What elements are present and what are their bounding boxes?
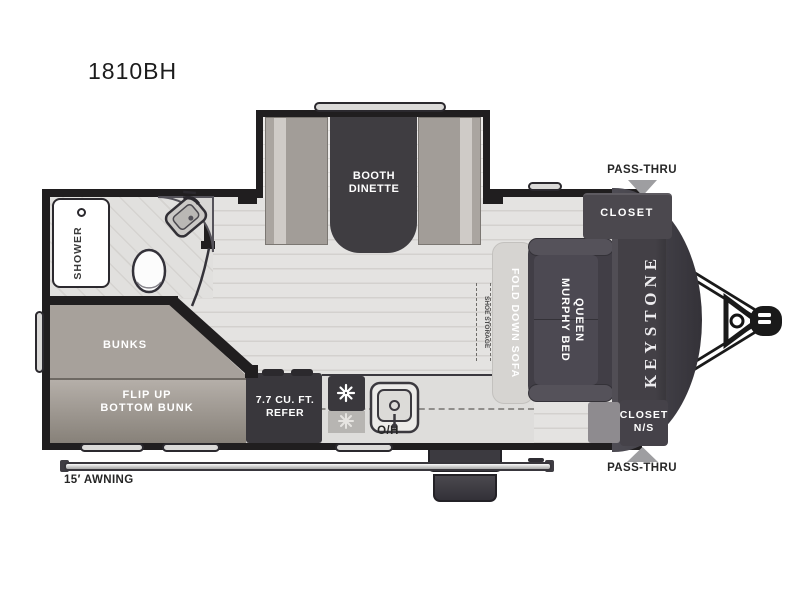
baggage-door	[80, 443, 144, 452]
bathroom-door-swing	[192, 248, 209, 306]
murphy-bed-label: QUEEN MURPHY BED	[554, 238, 586, 402]
shower-label: SHOWER	[72, 203, 88, 303]
window-rear	[35, 311, 44, 373]
burner-icon	[338, 385, 354, 401]
model-number: 1810BH	[88, 58, 177, 85]
bunks-label: BUNKS	[85, 339, 165, 352]
booth-dinette-label: BOOTH DINETTE	[330, 170, 418, 196]
pass-thru-label-bottom: PASS-THRU	[592, 462, 692, 474]
diagonal-wall	[172, 300, 252, 372]
overhead-label: O/H	[374, 425, 402, 437]
fixtures-layer	[0, 0, 800, 600]
window-top	[528, 182, 562, 191]
brand-logo: KEYSTONE	[641, 191, 663, 451]
nightstand	[588, 402, 620, 443]
flip-bunk-label: FLIP UP BOTTOM BUNK	[67, 389, 227, 415]
toilet-icon	[133, 250, 165, 292]
floorplan-1810bh: 1810BH BOOTH DINETTE SHOWER BUNKS FLIP U…	[0, 0, 800, 600]
pass-thru-label-top: PASS-THRU	[592, 164, 692, 176]
baggage-door	[162, 443, 220, 452]
window-bottom	[335, 443, 393, 452]
awning-bar	[64, 462, 552, 471]
bathroom-bottom-wall	[46, 296, 178, 305]
refer-label: 7.7 CU. FT. REFER	[249, 394, 321, 420]
burner-icon	[339, 414, 353, 428]
awning-label: 15′ AWNING	[64, 474, 174, 486]
slide-window	[314, 102, 446, 112]
fold-down-sofa-label: FOLD DOWN SOFA	[505, 242, 521, 404]
shoe-storage-label: SHOE STORAGE	[478, 285, 490, 359]
